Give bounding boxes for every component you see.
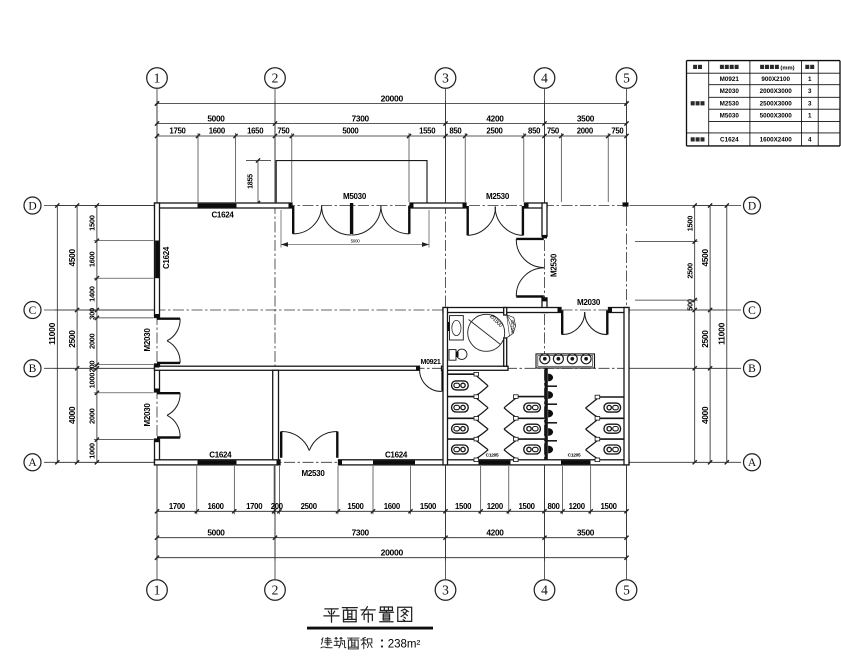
svg-text:D: D <box>28 200 36 212</box>
svg-text:2: 2 <box>272 583 279 598</box>
svg-text:(mm): (mm) <box>780 65 794 71</box>
svg-text:5000: 5000 <box>207 528 225 538</box>
svg-text:4000: 4000 <box>700 406 710 424</box>
svg-text:850: 850 <box>528 127 541 136</box>
svg-text:M2530: M2530 <box>550 253 559 277</box>
svg-text:200: 200 <box>271 502 284 511</box>
svg-text:5000: 5000 <box>342 127 359 136</box>
svg-text:20000: 20000 <box>381 93 404 103</box>
svg-text:2500: 2500 <box>700 330 710 348</box>
svg-text:2500: 2500 <box>67 330 77 348</box>
svg-text:M0921: M0921 <box>421 359 441 366</box>
svg-text:1700: 1700 <box>169 502 186 511</box>
svg-text:M5030: M5030 <box>343 192 367 201</box>
svg-text:4000: 4000 <box>67 406 77 424</box>
svg-text:1000: 1000 <box>88 373 97 389</box>
svg-text:1: 1 <box>154 583 161 598</box>
svg-text:1400: 1400 <box>88 286 97 302</box>
svg-text:M2030: M2030 <box>143 403 152 427</box>
svg-text:B: B <box>748 363 756 375</box>
svg-text:B: B <box>29 363 37 375</box>
svg-text:M5030: M5030 <box>720 113 740 120</box>
svg-text:C1205: C1205 <box>568 453 581 459</box>
svg-text:4: 4 <box>808 137 812 144</box>
svg-text:5000: 5000 <box>351 239 361 244</box>
svg-text:500: 500 <box>685 299 694 311</box>
svg-text:1750: 1750 <box>169 127 186 136</box>
svg-text:3: 3 <box>442 583 449 598</box>
svg-text:M2030: M2030 <box>720 88 740 95</box>
svg-text:1500: 1500 <box>347 502 364 511</box>
svg-text:3: 3 <box>442 71 449 86</box>
svg-text:4200: 4200 <box>486 113 504 123</box>
svg-text:M2030: M2030 <box>577 298 601 307</box>
svg-text:11000: 11000 <box>47 322 57 344</box>
svg-text:1500: 1500 <box>420 502 437 511</box>
svg-text:5000X3000: 5000X3000 <box>760 113 793 120</box>
svg-text:1500: 1500 <box>519 502 536 511</box>
svg-text:D: D <box>748 200 756 212</box>
svg-text:1700: 1700 <box>246 502 263 511</box>
svg-text:4: 4 <box>541 583 548 598</box>
svg-text:2500: 2500 <box>486 127 503 136</box>
svg-text:3: 3 <box>808 101 812 108</box>
svg-text:750: 750 <box>611 127 624 136</box>
svg-text:2500: 2500 <box>685 263 694 279</box>
svg-text:4200: 4200 <box>486 528 504 538</box>
svg-text:1000: 1000 <box>88 443 97 459</box>
svg-text:2: 2 <box>272 71 279 86</box>
svg-text:238m²: 238m² <box>388 639 421 651</box>
svg-text:1600X2400: 1600X2400 <box>760 137 793 144</box>
svg-text:1600: 1600 <box>208 502 225 511</box>
svg-text:1500: 1500 <box>88 215 97 231</box>
svg-text:C1624: C1624 <box>162 246 171 269</box>
svg-text:3500: 3500 <box>577 113 595 123</box>
svg-text:750: 750 <box>547 127 560 136</box>
svg-text:C1205: C1205 <box>486 453 499 459</box>
svg-text:900X2100: 900X2100 <box>761 76 790 83</box>
svg-text:A: A <box>28 457 37 469</box>
svg-text:4500: 4500 <box>67 248 77 266</box>
svg-text:850: 850 <box>449 127 462 136</box>
svg-text:5: 5 <box>623 583 630 598</box>
svg-text:2000: 2000 <box>88 408 97 424</box>
svg-text:800: 800 <box>547 502 560 511</box>
svg-text:5: 5 <box>623 71 630 86</box>
svg-text:1: 1 <box>808 76 812 83</box>
svg-text:C1624: C1624 <box>211 211 234 220</box>
svg-text:A: A <box>748 457 757 469</box>
svg-text:1600: 1600 <box>88 252 97 268</box>
svg-text:1855: 1855 <box>246 174 255 189</box>
svg-text:W1120: W1120 <box>510 320 515 333</box>
svg-text:4: 4 <box>541 71 548 86</box>
svg-text:C1624: C1624 <box>209 451 232 460</box>
svg-text:1500: 1500 <box>455 502 472 511</box>
svg-text:1: 1 <box>808 113 812 120</box>
svg-text:300: 300 <box>88 308 97 320</box>
svg-text:1600: 1600 <box>209 127 226 136</box>
svg-text:C: C <box>748 305 756 317</box>
svg-text:2000: 2000 <box>88 333 97 349</box>
svg-text:5000: 5000 <box>207 113 225 123</box>
svg-text:1: 1 <box>154 71 161 86</box>
svg-text:2000X3000: 2000X3000 <box>760 88 793 95</box>
svg-text:7300: 7300 <box>352 113 370 123</box>
svg-text:2500: 2500 <box>301 502 318 511</box>
svg-text:M0921: M0921 <box>720 76 740 83</box>
svg-text:C1624: C1624 <box>720 137 739 144</box>
svg-text:C: C <box>29 305 37 317</box>
svg-text:1200: 1200 <box>569 502 586 511</box>
svg-text:4500: 4500 <box>700 248 710 266</box>
svg-text:1600: 1600 <box>384 502 401 511</box>
svg-text:1200: 1200 <box>487 502 504 511</box>
svg-text:2000: 2000 <box>577 127 594 136</box>
svg-text:1500: 1500 <box>601 502 618 511</box>
svg-text:M2530: M2530 <box>302 469 326 478</box>
svg-text:1500: 1500 <box>685 216 694 232</box>
svg-text:11000: 11000 <box>717 322 727 344</box>
svg-text:3: 3 <box>808 88 812 95</box>
svg-text:750: 750 <box>277 127 290 136</box>
svg-text:M2030: M2030 <box>143 328 152 352</box>
svg-text:M2530: M2530 <box>720 101 740 108</box>
svg-text:200: 200 <box>88 361 97 373</box>
svg-text:M2530: M2530 <box>486 192 510 201</box>
svg-text:2500X3000: 2500X3000 <box>760 101 793 108</box>
svg-text:3500: 3500 <box>577 528 595 538</box>
svg-text:1550: 1550 <box>419 127 436 136</box>
svg-text:C1624: C1624 <box>385 451 408 460</box>
svg-text:1650: 1650 <box>247 127 264 136</box>
svg-text:20000: 20000 <box>381 548 404 558</box>
svg-text:7300: 7300 <box>352 528 370 538</box>
